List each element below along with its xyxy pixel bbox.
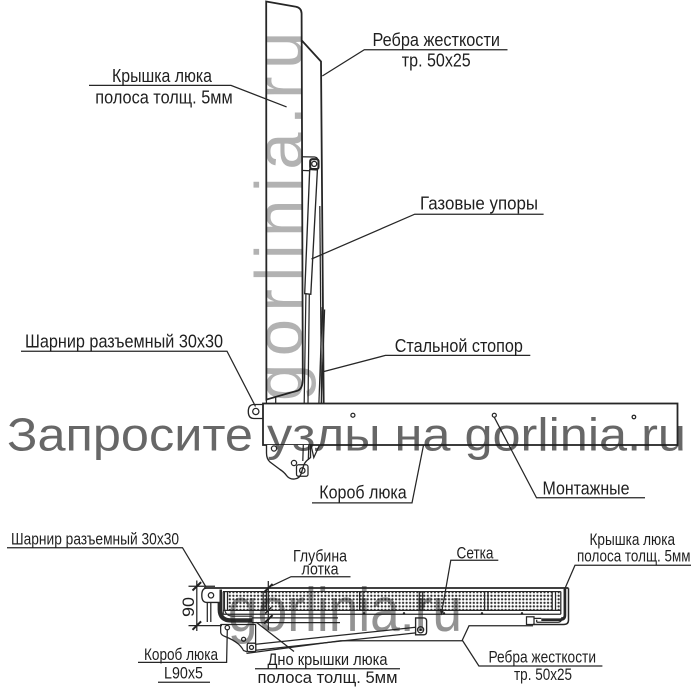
svg-text:Шарнир разъемный 30х30: Шарнир разъемный 30х30 bbox=[11, 530, 179, 549]
svg-text:Стальной стопор: Стальной стопор bbox=[395, 335, 523, 356]
svg-text:Запросите узлы на gorlinia.ru: Запросите узлы на gorlinia.ru bbox=[7, 409, 686, 461]
svg-text:90: 90 bbox=[179, 597, 198, 617]
svg-text:тр. 50х25: тр. 50х25 bbox=[514, 665, 572, 684]
svg-text:Ребра жесткости: Ребра жесткости bbox=[373, 29, 501, 50]
svg-text:полоса толщ. 5мм: полоса толщ. 5мм bbox=[258, 668, 398, 687]
svg-text:Крышка люка: Крышка люка bbox=[112, 65, 213, 86]
svg-text:полоса толщ. 5мм: полоса толщ. 5мм bbox=[95, 87, 232, 108]
svg-text:Шарнир разъемный 30х30: Шарнир разъемный 30х30 bbox=[25, 331, 223, 352]
svg-text:полоса толщ. 5мм: полоса толщ. 5мм bbox=[577, 547, 691, 566]
svg-text:gorlinia.ru: gorlinia.ru bbox=[242, 24, 317, 401]
svg-text:Монтажные: Монтажные bbox=[543, 477, 630, 498]
svg-text:gorlinia.ru: gorlinia.ru bbox=[228, 576, 462, 645]
svg-text:Газовые упоры: Газовые упоры bbox=[420, 193, 538, 214]
svg-text:тр. 50х25: тр. 50х25 bbox=[402, 50, 471, 71]
svg-text:Сетка: Сетка bbox=[457, 544, 494, 563]
svg-text:Дно крышки люка: Дно крышки люка bbox=[268, 650, 388, 669]
svg-text:Короб люка: Короб люка bbox=[144, 645, 218, 664]
svg-text:L90х5: L90х5 bbox=[164, 664, 203, 683]
svg-text:Ребра жесткости: Ребра жесткости bbox=[489, 648, 597, 667]
svg-text:Короб люка: Короб люка bbox=[319, 481, 407, 502]
